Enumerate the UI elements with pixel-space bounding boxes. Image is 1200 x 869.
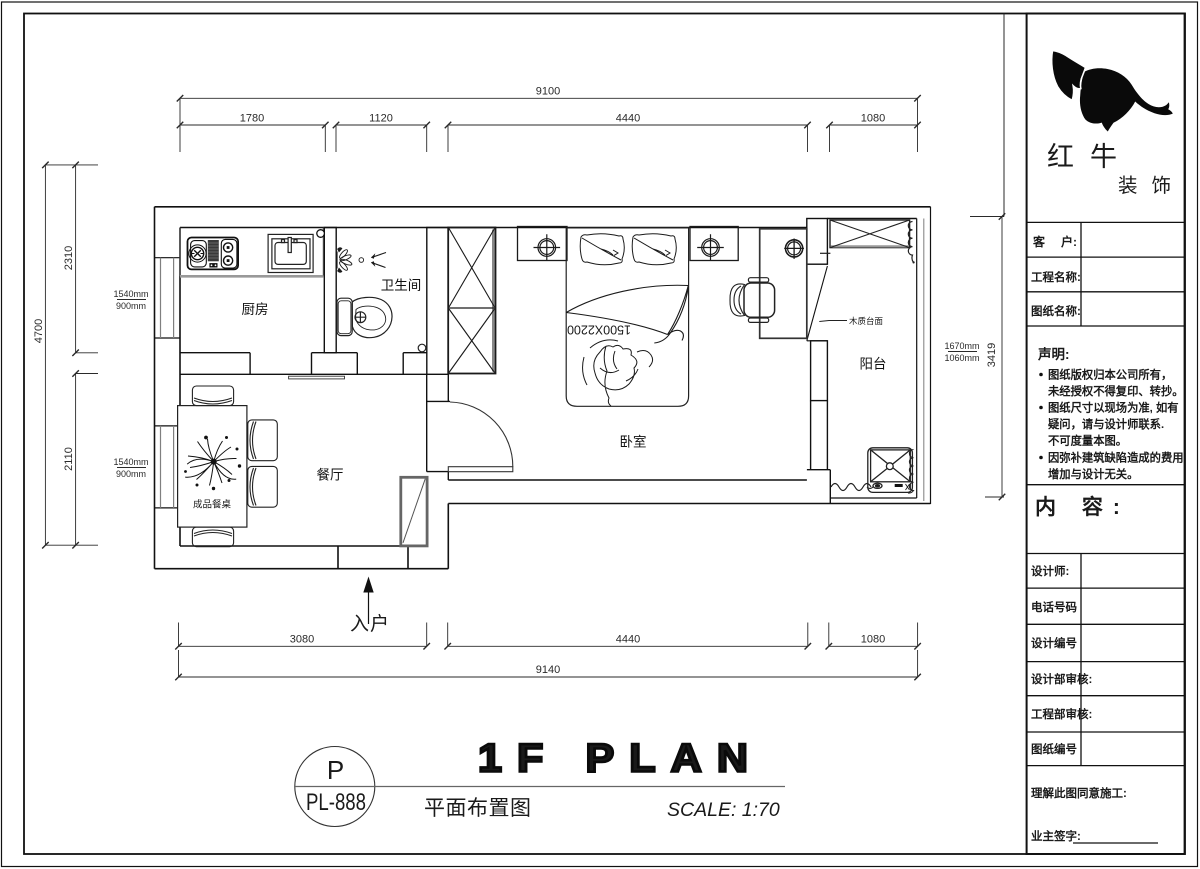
svg-text:装饰: 装饰 xyxy=(1118,175,1185,197)
svg-text:厨房: 厨房 xyxy=(242,302,269,317)
svg-text:1080: 1080 xyxy=(861,112,885,124)
svg-text:900mm: 900mm xyxy=(116,301,146,311)
svg-text:3419: 3419 xyxy=(986,343,998,367)
svg-text:P: P xyxy=(327,755,344,785)
svg-text:900mm: 900mm xyxy=(116,469,146,479)
svg-text:电话号码: 电话号码 xyxy=(1031,600,1077,614)
svg-text:餐厅: 餐厅 xyxy=(317,468,344,483)
svg-text:户: 户 xyxy=(370,613,389,635)
svg-text:设计编号: 设计编号 xyxy=(1031,636,1077,650)
svg-text:图纸版权归本公司所有，: 图纸版权归本公司所有， xyxy=(1048,368,1172,382)
svg-text:1540mm: 1540mm xyxy=(113,289,148,299)
svg-text:成品餐桌: 成品餐桌 xyxy=(193,499,232,511)
svg-text:4440: 4440 xyxy=(616,112,640,124)
svg-text:1780: 1780 xyxy=(240,112,264,124)
svg-text:PL-888: PL-888 xyxy=(306,789,366,816)
svg-text:图纸编号: 图纸编号 xyxy=(1031,742,1077,756)
svg-text:疑问，请与设计师联系.: 疑问，请与设计师联系. xyxy=(1048,417,1164,431)
svg-text:木质台面: 木质台面 xyxy=(849,316,884,326)
svg-text:不可度量本图。: 不可度量本图。 xyxy=(1048,434,1127,448)
svg-text:声明:: 声明: xyxy=(1037,346,1070,362)
svg-text:客: 客 xyxy=(1032,234,1046,249)
svg-text:SCALE: 1:70: SCALE: 1:70 xyxy=(667,799,780,821)
svg-text:卫生间: 卫生间 xyxy=(381,278,422,293)
svg-text:4440: 4440 xyxy=(616,634,640,646)
svg-text:9140: 9140 xyxy=(536,664,560,676)
svg-text:9100: 9100 xyxy=(536,86,560,98)
svg-text:1120: 1120 xyxy=(369,112,393,124)
svg-text:4700: 4700 xyxy=(33,319,45,343)
svg-text:平面布置图: 平面布置图 xyxy=(424,797,532,820)
svg-text:1540mm: 1540mm xyxy=(113,457,148,467)
svg-text:红牛: 红牛 xyxy=(1047,142,1133,172)
svg-text:理解此图同意施工:: 理解此图同意施工: xyxy=(1031,786,1127,800)
svg-text:卧室: 卧室 xyxy=(620,434,647,450)
svg-text:2310: 2310 xyxy=(63,246,75,270)
svg-text:入: 入 xyxy=(350,614,369,635)
svg-text:户:: 户: xyxy=(1061,234,1077,249)
svg-text:设计师:: 设计师: xyxy=(1031,564,1069,578)
svg-text:图纸名称:: 图纸名称: xyxy=(1031,304,1081,318)
svg-text:图纸尺寸以现场为准, 如有: 图纸尺寸以现场为准, 如有 xyxy=(1048,401,1179,415)
svg-text:1060mm: 1060mm xyxy=(944,353,979,363)
svg-text:1500X2200: 1500X2200 xyxy=(567,323,631,337)
svg-text:工程部审核:: 工程部审核: xyxy=(1031,707,1092,721)
svg-text:1670mm: 1670mm xyxy=(944,341,979,351)
svg-text:业主签字:: 业主签字: xyxy=(1031,829,1081,843)
svg-text:1F PLAN: 1F PLAN xyxy=(478,737,763,781)
svg-text:2110: 2110 xyxy=(63,447,75,471)
svg-text:1080: 1080 xyxy=(861,634,885,646)
svg-text:设计部审核:: 设计部审核: xyxy=(1031,672,1092,686)
svg-text:工程名称:: 工程名称: xyxy=(1031,270,1081,284)
svg-text:内 容:: 内 容: xyxy=(1035,495,1130,519)
svg-text:阳台: 阳台 xyxy=(860,357,887,372)
svg-text:未经授权不得复印、转抄。: 未经授权不得复印、转抄。 xyxy=(1047,384,1184,398)
svg-text:3080: 3080 xyxy=(290,634,314,646)
svg-text:增加与设计无关。: 增加与设计无关。 xyxy=(1048,467,1138,481)
svg-text:因弥补建筑缺陷造成的费用: 因弥补建筑缺陷造成的费用 xyxy=(1048,451,1184,465)
